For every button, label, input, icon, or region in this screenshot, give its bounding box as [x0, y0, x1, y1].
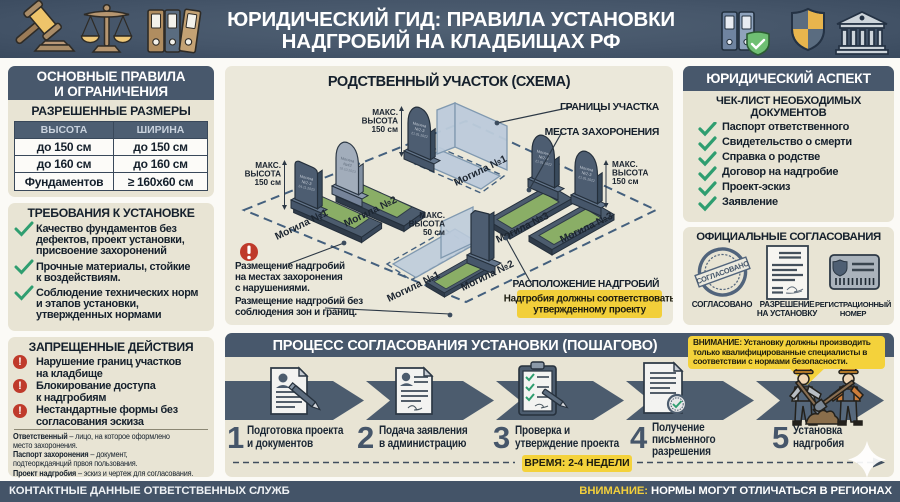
svg-text:с нарушениями.: с нарушениями.	[235, 283, 310, 294]
svg-text:150 см: 150 см	[612, 177, 639, 186]
svg-text:150 см: 150 см	[254, 178, 281, 187]
svg-text:50 см: 50 см	[423, 228, 445, 237]
svg-text:РАСПОЛОЖЕНИЕ НАДГРОБИЙ: РАСПОЛОЖЕНИЕ НАДГРОБИЙ	[513, 277, 660, 290]
svg-text:на местах захоронения: на местах захоронения	[235, 272, 343, 283]
svg-text:Размещение надгробий: Размещение надгробий	[235, 261, 345, 272]
svg-text:Размещение надгробий без: Размещение надгробий без	[235, 296, 363, 307]
svg-text:МЕСТА ЗАХОРОНЕНИЯ: МЕСТА ЗАХОРОНЕНИЯ	[545, 127, 659, 138]
svg-text:Надгробия должны соответствова: Надгробия должны соответствовать	[504, 294, 673, 305]
svg-text:утвержденному проекту: утвержденному проекту	[533, 305, 646, 316]
svg-text:150 см: 150 см	[371, 125, 398, 134]
svg-text:ГРАНИЦЫ УЧАСТКА: ГРАНИЦЫ УЧАСТКА	[560, 102, 660, 113]
